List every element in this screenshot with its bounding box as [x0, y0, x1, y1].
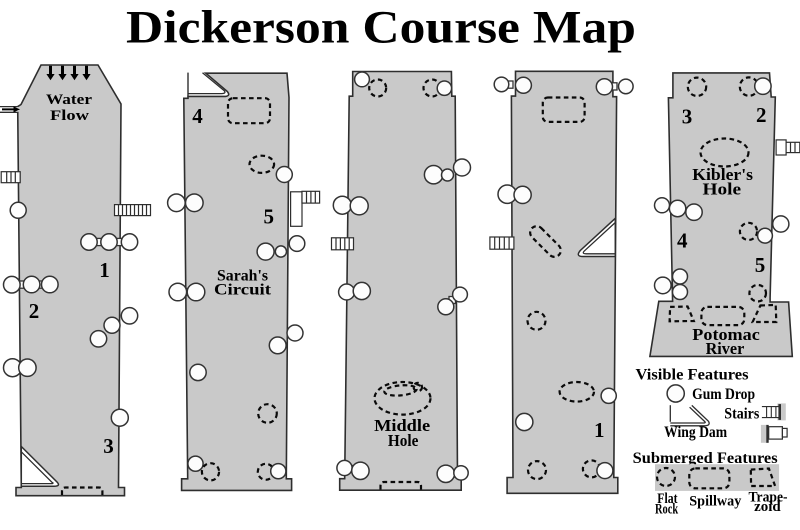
svg-text:Visible Features: Visible Features	[636, 366, 749, 383]
svg-text:Wing Dam: Wing Dam	[664, 424, 727, 441]
svg-text:Stairs: Stairs	[724, 405, 759, 422]
svg-text:4: 4	[677, 229, 688, 253]
svg-text:River: River	[706, 339, 745, 358]
svg-text:5: 5	[264, 205, 275, 229]
svg-text:Water: Water	[46, 92, 92, 108]
svg-text:1: 1	[99, 258, 110, 282]
svg-text:zoid: zoid	[754, 499, 781, 515]
svg-text:Circuit: Circuit	[214, 282, 272, 299]
svg-text:2: 2	[756, 103, 767, 127]
svg-text:3: 3	[682, 104, 693, 128]
svg-text:Rock: Rock	[655, 501, 679, 517]
svg-text:5: 5	[755, 253, 766, 277]
svg-text:3: 3	[103, 434, 114, 458]
svg-text:2: 2	[29, 299, 40, 323]
svg-text:1: 1	[594, 418, 605, 442]
svg-text:Gum Drop: Gum Drop	[692, 386, 755, 403]
svg-text:Flow: Flow	[50, 108, 89, 124]
svg-text:Hole: Hole	[703, 180, 742, 199]
svg-text:Spillway: Spillway	[689, 494, 741, 510]
svg-text:Hole: Hole	[388, 431, 419, 450]
svg-text:Dickerson Course Map: Dickerson Course Map	[126, 2, 636, 54]
svg-text:4: 4	[192, 104, 203, 128]
